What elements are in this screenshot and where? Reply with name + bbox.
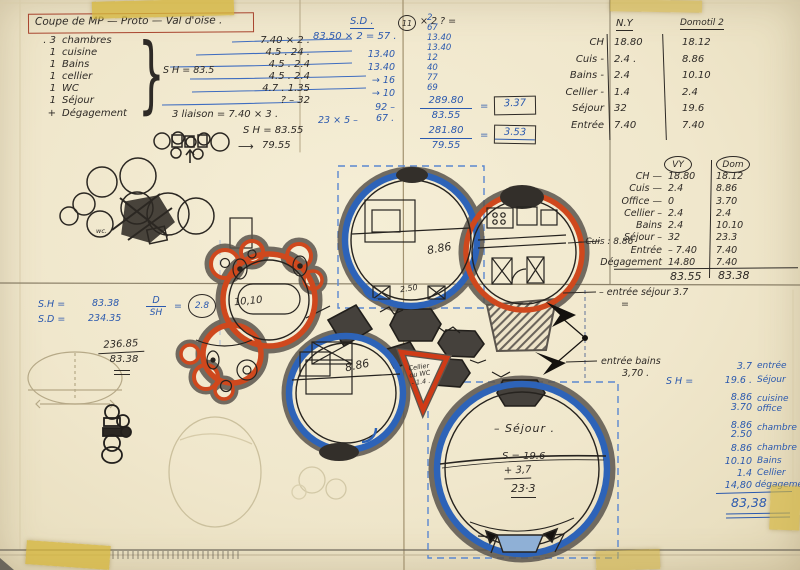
- sh-key: S.H =: [38, 300, 65, 310]
- program-label: Bains: [62, 60, 89, 71]
- sketch-faint-ovals: [169, 417, 346, 527]
- program-value: 4.5 . 2.4: [188, 60, 310, 71]
- area-label: chambre: [757, 444, 797, 454]
- equals-sign: =: [480, 102, 488, 113]
- result-box: 3.53: [494, 125, 536, 145]
- result-box: 3.37: [494, 96, 536, 116]
- area-label: office: [757, 405, 782, 415]
- brace-glyph: }: [138, 30, 165, 119]
- sd-last-right: 67 .: [376, 114, 394, 124]
- annotation-equals: =: [621, 300, 629, 310]
- row-labels: CHCuis - Bains -Cellier - SéjourEntrée: [548, 38, 604, 137]
- tape-strip: [769, 485, 800, 530]
- row-labels: CH —Cuis — Office —Cellier – BainsSéjour…: [592, 172, 662, 270]
- circle-suffix: × 2 ? =: [420, 17, 456, 27]
- area-label: Séjour: [757, 376, 786, 386]
- result-value: 3.53: [495, 128, 535, 140]
- furniture-kitchen: [478, 207, 566, 284]
- area-label: chambre: [757, 424, 797, 434]
- sh-prefix: S H =: [666, 377, 693, 387]
- program-value: 4.5 . 24 .: [188, 48, 310, 59]
- sum-item: 67: [427, 24, 438, 33]
- col-domotil-values: 18.128.86 10.102.4 19.67.40: [682, 38, 732, 137]
- furniture-mid-room: [292, 342, 400, 442]
- area-label: entrée: [757, 362, 787, 372]
- program-label: Séjour: [62, 96, 94, 107]
- total-value: 83.38: [718, 270, 750, 282]
- annotation-entree-sejour: – entrée séjour 3.7: [599, 288, 688, 298]
- column-header: Domotil 2: [680, 19, 724, 30]
- col-dom-values: 18.128.86 3.702.4 10.1023.3 7.407.40: [716, 172, 764, 270]
- sum-item: 12: [427, 54, 438, 63]
- col-ny-values: 18.802.4 . 2.41.4 327.40: [614, 38, 654, 137]
- sd-val: 13.40: [340, 63, 395, 73]
- program-qty: 1: [34, 72, 56, 83]
- wc-note: wc.: [96, 228, 107, 235]
- double-underline: [114, 370, 130, 375]
- sejour-calc-total: 23·3: [511, 483, 536, 498]
- fraction-denominator: 83.55: [420, 111, 472, 122]
- program-value: ? – 32: [188, 96, 310, 107]
- sd-value: 234.35: [88, 314, 121, 324]
- area-value: 19.6 .: [704, 376, 752, 386]
- program-label: cuisine: [62, 48, 97, 59]
- drawing-sheet: Coupe de MP — Proto — Val d'oise . . 3 c…: [0, 0, 800, 570]
- tape-strip: [596, 549, 661, 570]
- program-qty: 1: [34, 48, 56, 59]
- fraction-denominator: 79.55: [420, 141, 472, 152]
- program-qty: +: [34, 109, 56, 120]
- sd-key: S.D =: [38, 315, 65, 325]
- sd-last-left: 23 × 5 –: [318, 116, 358, 126]
- program-label: Dégagement: [62, 109, 127, 120]
- total-value: 83.55: [670, 271, 702, 283]
- fraction-numerator: D: [146, 296, 166, 307]
- sum-item: 13.40: [427, 34, 451, 43]
- sh-total: S H = 83.55: [243, 126, 303, 137]
- arrow-total: 79.55: [262, 141, 291, 152]
- program-qty: . 3: [34, 36, 56, 47]
- sd-val: 13.40: [340, 50, 395, 60]
- result-value: 3.37: [495, 99, 535, 110]
- area-value: 2.50: [704, 430, 752, 440]
- arrow-right-icon: ⟶: [238, 141, 254, 153]
- area-value: 3.70: [704, 403, 752, 413]
- sh-value: 83.38: [92, 299, 119, 309]
- program-label: cellier: [62, 72, 92, 83]
- fraction-denominator: SH: [146, 309, 166, 319]
- program-value: 4.7 . 1.35: [188, 84, 310, 95]
- sd-heading: S.D .: [350, 17, 374, 29]
- sejour-calc-line: S = 19.6: [502, 452, 545, 463]
- sum-item: 13.40: [427, 44, 451, 53]
- circled-number: 11: [398, 15, 416, 31]
- sketch-cluster-thumbnail: [60, 158, 252, 248]
- program-label: WC: [62, 84, 79, 95]
- sum-item: 77: [427, 74, 438, 83]
- sejour-calc-line: + 3,7: [504, 466, 532, 480]
- col-vy-values: 18.802.4 02.4 2.432 – 7.4014.80: [668, 172, 708, 270]
- label-sejour: – Séjour .: [494, 423, 555, 435]
- sum-item: 40: [427, 64, 438, 73]
- fraction-numerator: 289.80: [420, 96, 472, 109]
- column-header: N.Y: [616, 19, 633, 31]
- scan-corner: [0, 558, 14, 570]
- sum-item: 2: [427, 14, 432, 23]
- sketch-small-doodle: [102, 405, 131, 463]
- faded-stamp: [112, 551, 242, 559]
- area-label: Bains: [757, 457, 782, 467]
- area-total: 83,38: [731, 496, 767, 509]
- program-qty: 1: [34, 84, 56, 95]
- equals-sign: =: [174, 302, 182, 312]
- sum-item: 69: [427, 84, 438, 93]
- program-value: 7.40 × 2 .: [188, 36, 310, 47]
- annotation-entree-bains-value: 3,70 .: [622, 369, 649, 379]
- circled-ratio: 2.8: [188, 294, 216, 318]
- program-value: 4.5 . 2.4: [188, 72, 310, 83]
- equals-sign: =: [480, 131, 488, 142]
- area-label: Cellier: [757, 469, 786, 479]
- sd-line: 83.50 × 2 = 57 .: [313, 32, 397, 43]
- program-value: 3 liaison = 7.40 × 3 .: [172, 110, 278, 121]
- sd-val: → 16: [340, 76, 395, 86]
- tape-strip: [610, 0, 702, 13]
- fraction-numerator: 281.80: [420, 126, 472, 139]
- area-value: 10.10: [704, 457, 752, 467]
- sketch-bubble-row: [154, 132, 229, 163]
- sd-val: 92 –: [340, 103, 395, 113]
- area-value: 14,80: [704, 481, 752, 491]
- fraction-numerator: 236.85: [98, 339, 145, 354]
- program-qty: 1: [34, 60, 56, 71]
- program-label: chambres: [62, 36, 112, 47]
- annotation-entree-bains: entrée bains: [601, 357, 661, 367]
- area-value: 1.4: [704, 469, 752, 479]
- sd-val: → 10: [340, 89, 395, 99]
- area-value: 3.7: [704, 362, 752, 372]
- table-note: – Cuis : 8.86: [578, 238, 633, 248]
- area-value: 8.86: [704, 444, 752, 454]
- fraction-denominator: 83.38: [104, 355, 144, 366]
- program-qty: 1: [34, 96, 56, 107]
